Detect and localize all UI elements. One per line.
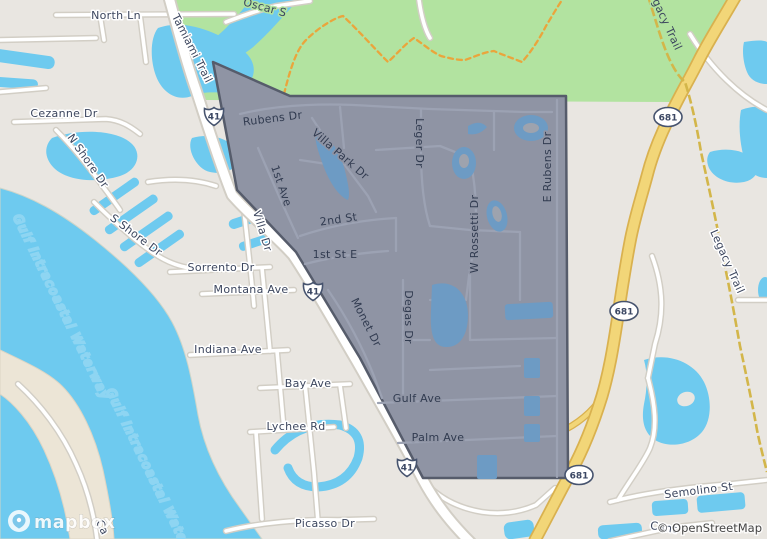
svg-text:681: 681 xyxy=(570,472,589,482)
svg-text:681: 681 xyxy=(659,114,678,124)
street-label-degas: Degas Dr xyxy=(402,290,415,344)
attribution-link[interactable]: © OpenStreetMap xyxy=(657,521,762,535)
street-label-montana: Montana Ave xyxy=(214,283,289,296)
mapbox-logo[interactable]: mapbox xyxy=(8,510,116,533)
street-label-sorrento: Sorrento Dr xyxy=(188,261,255,274)
street-label-cezanne: Cezanne Dr xyxy=(30,107,97,120)
fl681-shield: 681 xyxy=(565,466,593,485)
svg-text:681: 681 xyxy=(615,308,634,318)
street-label-leger: Leger Dr xyxy=(413,118,426,168)
street-label-e-rubens: E Rubens Dr xyxy=(541,131,554,202)
svg-text:41: 41 xyxy=(208,113,221,123)
street-label-1st-st-e: 1st St E xyxy=(313,248,358,261)
street-label-lychee: Lychee Rd xyxy=(266,420,325,433)
svg-text:41: 41 xyxy=(307,288,320,298)
street-label-north-ln: North Ln xyxy=(91,9,141,22)
street-label-bay: Bay Ave xyxy=(285,377,332,390)
street-label-gulf-ave: Gulf Ave xyxy=(393,392,441,405)
fl681-shield: 681 xyxy=(654,108,682,127)
fl681-shield: 681 xyxy=(610,302,638,321)
street-label-w-rossetti: W Rossetti Dr xyxy=(468,195,481,274)
svg-text:41: 41 xyxy=(401,464,414,474)
mapbox-logo-text: mapbox xyxy=(34,513,116,533)
street-label-picasso: Picasso Dr xyxy=(295,517,355,530)
map-canvas[interactable]: North Ln Oscar S Tamiami Trail Cezanne D… xyxy=(0,0,767,539)
street-label-indiana: Indiana Ave xyxy=(194,343,262,356)
street-label-palm-ave: Palm Ave xyxy=(412,431,465,444)
